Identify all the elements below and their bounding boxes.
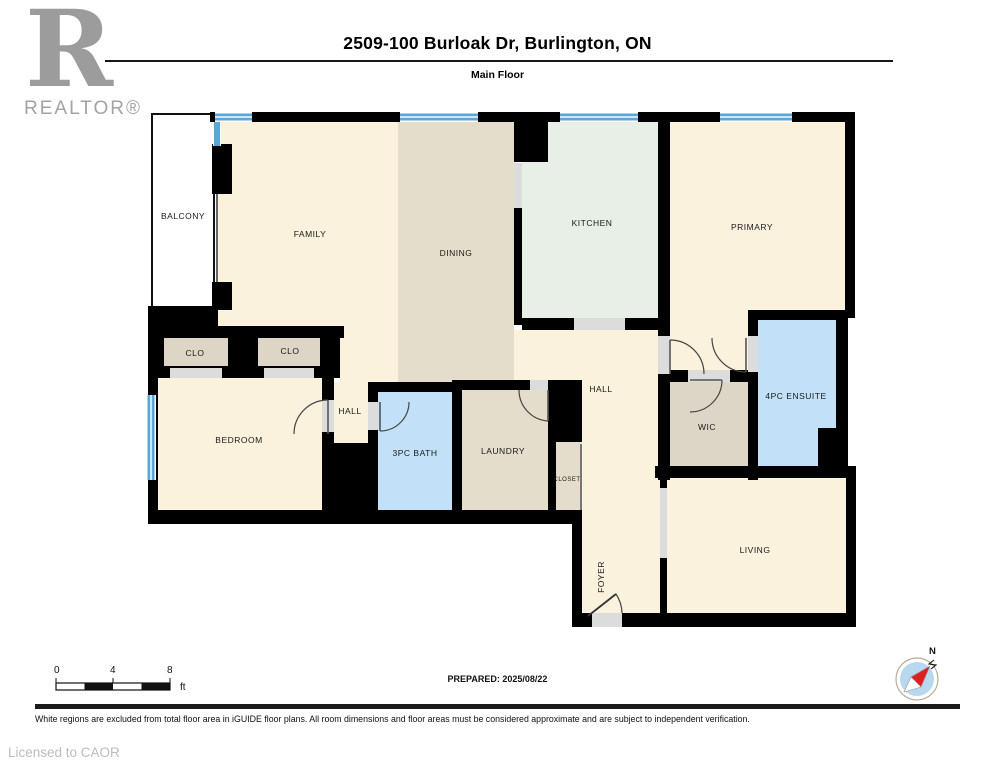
room-label-laundry: LAUNDRY — [481, 446, 525, 456]
wall-segment — [212, 144, 232, 194]
door-gap — [658, 336, 670, 374]
wall-segment — [452, 380, 530, 390]
wall-segment — [660, 478, 667, 488]
floorplan-drawing: BALCONYFAMILYDININGKITCHENPRIMARYHALLFOY… — [0, 0, 995, 768]
room-label-kitchen: KITCHEN — [572, 218, 613, 228]
wall-segment — [368, 430, 378, 445]
door-gap — [748, 336, 758, 372]
window — [215, 112, 252, 122]
room-label-hall-main: HALL — [589, 384, 612, 394]
room-label-primary: PRIMARY — [731, 222, 773, 232]
wall-segment — [212, 282, 232, 310]
wall-segment — [514, 122, 548, 162]
wall-segment — [658, 122, 670, 336]
wall-segment — [148, 306, 218, 328]
wall-segment — [625, 318, 658, 330]
scale-bar-segment — [142, 683, 171, 690]
room-label-closet-foyer: CLOSET — [553, 477, 580, 483]
threshold — [264, 368, 314, 378]
room-family-passage — [340, 326, 398, 390]
wall-segment — [658, 374, 670, 480]
threshold — [514, 163, 522, 208]
room-label-family: FAMILY — [294, 229, 327, 239]
room-label-closet-2: CLO — [281, 346, 300, 356]
wall-segment — [818, 428, 838, 468]
wall-segment — [228, 326, 258, 372]
window — [720, 112, 792, 122]
scale-bar-segment — [85, 683, 114, 690]
window — [213, 122, 221, 146]
room-label-ensuite-4pc: 4PC ENSUITE — [765, 391, 826, 401]
compass — [890, 650, 950, 706]
threshold — [170, 368, 222, 378]
wall-segment — [572, 510, 582, 620]
wall-segment — [670, 370, 688, 382]
footer-divider — [35, 704, 960, 709]
room-foyer — [582, 466, 660, 615]
room-label-bedroom: BEDROOM — [215, 435, 262, 445]
room-family — [218, 122, 398, 328]
room-label-hall-bedroom: HALL — [338, 406, 361, 416]
wall-segment — [846, 466, 856, 626]
window — [560, 112, 638, 122]
threshold — [574, 318, 625, 330]
wall-segment — [332, 443, 378, 512]
threshold — [592, 613, 622, 627]
wall-segment — [148, 510, 582, 524]
room-label-living: LIVING — [740, 545, 771, 555]
door-gap — [530, 380, 548, 390]
wall-segment — [368, 382, 462, 392]
wall-segment — [660, 558, 667, 615]
window — [400, 112, 478, 122]
room-label-closet-1: CLO — [186, 348, 205, 358]
wall-segment — [452, 382, 462, 512]
wall-segment — [522, 318, 574, 330]
room-label-balcony: BALCONY — [161, 211, 205, 221]
compass-north-label: N — [929, 646, 936, 657]
wall-segment — [748, 372, 758, 480]
wall-segment — [322, 378, 334, 400]
wall-segment — [845, 112, 855, 318]
wall-segment — [748, 310, 846, 320]
wall-segment — [514, 208, 522, 325]
licensed-text: Licensed to CAOR — [8, 745, 120, 760]
room-label-wic: WIC — [698, 422, 716, 432]
room-bedroom — [158, 378, 322, 512]
wall-segment — [655, 466, 856, 478]
room-label-foyer: FOYER — [596, 561, 606, 593]
room-label-bath-3pc: 3PC BATH — [393, 448, 438, 458]
threshold — [660, 488, 667, 558]
wall-segment — [548, 380, 582, 442]
prepared-date: PREPARED: 2025/08/22 — [0, 674, 995, 684]
floorplan-page: R REALTOR® 2509-100 Burloak Dr, Burlingt… — [0, 0, 995, 768]
window — [146, 395, 156, 480]
door-gap — [368, 402, 378, 430]
disclaimer-text: White regions are excluded from total fl… — [35, 714, 965, 724]
room-label-dining: DINING — [440, 248, 473, 258]
